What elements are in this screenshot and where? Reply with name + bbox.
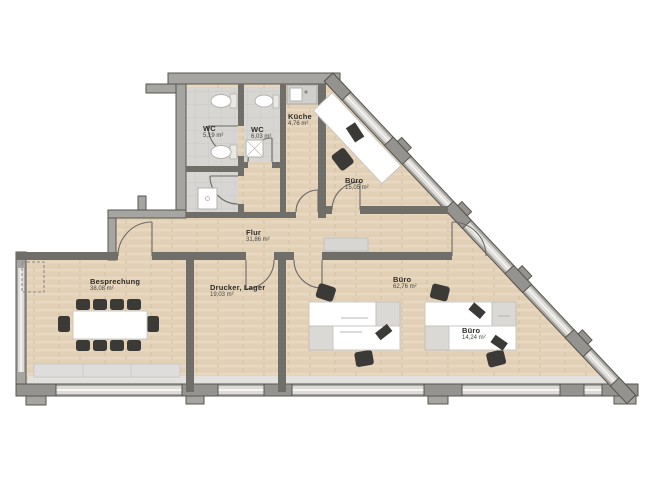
wall bbox=[238, 84, 244, 126]
wall bbox=[186, 212, 296, 218]
wall bbox=[16, 252, 118, 260]
desk-cabinet bbox=[492, 302, 516, 326]
toilet bbox=[255, 95, 273, 107]
conference-chair bbox=[76, 299, 90, 310]
toilet bbox=[211, 95, 231, 108]
utility-sink bbox=[198, 188, 217, 209]
wall-foot bbox=[428, 396, 448, 404]
wall bbox=[326, 206, 332, 214]
wall-wc-west bbox=[176, 84, 186, 218]
wall bbox=[272, 162, 280, 168]
wall-top bbox=[168, 73, 340, 84]
radiator-besprechung bbox=[34, 364, 180, 377]
wall bbox=[244, 162, 248, 168]
window-bottom-frame bbox=[22, 389, 612, 391]
conference-chair bbox=[93, 299, 107, 310]
wall bbox=[194, 252, 246, 260]
desk bbox=[309, 302, 376, 326]
floorplan-drawing bbox=[0, 0, 653, 490]
wall bbox=[238, 156, 244, 176]
conference-chair bbox=[58, 316, 70, 332]
wall bbox=[278, 252, 286, 392]
conference-chair bbox=[76, 340, 90, 351]
sink bbox=[290, 88, 302, 101]
wall-top-stub bbox=[146, 84, 176, 93]
pillar bbox=[560, 384, 584, 396]
toilet bbox=[211, 146, 231, 159]
wall bbox=[360, 206, 448, 214]
wall bbox=[186, 166, 238, 172]
floorplan-canvas: WC 5,19 m² WC 6,03 m² Küche 4,76 m² Büro… bbox=[0, 0, 653, 490]
desk bbox=[449, 326, 516, 350]
wall bbox=[322, 252, 452, 260]
conference-chair bbox=[127, 340, 141, 351]
conference-chair bbox=[147, 316, 159, 332]
desk-cabinet bbox=[425, 326, 449, 350]
kitchen-counter bbox=[287, 85, 317, 104]
toilet-cistern bbox=[273, 95, 279, 108]
wall bbox=[280, 84, 286, 218]
conference-chair bbox=[110, 340, 124, 351]
conference-chair bbox=[93, 340, 107, 351]
desk-cabinet bbox=[376, 302, 400, 326]
office-chair bbox=[354, 350, 374, 368]
wall bbox=[186, 252, 194, 392]
conference-chair bbox=[127, 299, 141, 310]
flur-sideboard bbox=[324, 238, 368, 251]
conference-chair bbox=[110, 299, 124, 310]
wall-foot bbox=[26, 396, 46, 405]
pillar bbox=[424, 384, 462, 396]
pillar bbox=[16, 384, 56, 396]
desk-cabinet bbox=[309, 326, 333, 350]
faucet bbox=[304, 90, 307, 93]
conference-table bbox=[73, 311, 147, 339]
wall-foot bbox=[186, 396, 204, 404]
wall-entry-top bbox=[108, 210, 186, 218]
